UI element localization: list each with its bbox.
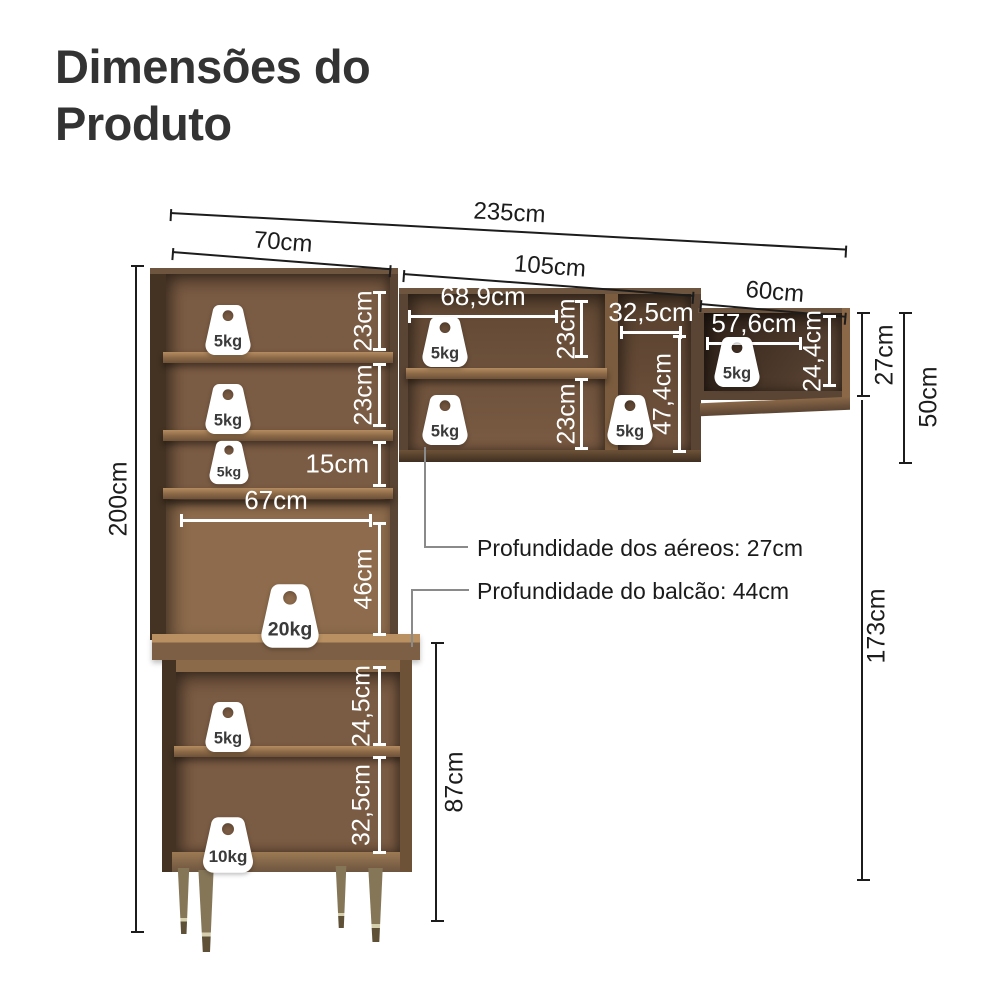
dim-mid-right-width: 32,5cm bbox=[620, 331, 682, 334]
weight-badge: 5kg bbox=[199, 701, 257, 753]
title-line-1: Dimensões do bbox=[55, 38, 370, 95]
leader-line-aereos bbox=[424, 447, 426, 548]
dim-hutch-shelf3: 15cm bbox=[378, 441, 381, 487]
weight-label: 5kg bbox=[214, 729, 242, 747]
leader-line-aereos bbox=[424, 546, 468, 548]
hutch-shelf bbox=[163, 430, 393, 441]
hutch-shelf bbox=[163, 352, 393, 363]
weight-badge: 5kg bbox=[416, 316, 474, 368]
dim-right-inner-width-label: 57,6cm bbox=[711, 308, 796, 339]
dim-mid-inner-width-label: 68,9cm bbox=[440, 281, 525, 312]
product-dimensions-diagram: Dimensões do Produto bbox=[0, 0, 1000, 1000]
page-title: Dimensões do Produto bbox=[55, 38, 370, 153]
weight-label: 5kg bbox=[214, 411, 242, 429]
dim-right-gap-label: 50cm bbox=[915, 366, 944, 427]
mid-bottom-edge bbox=[399, 450, 701, 462]
weight-label: 5kg bbox=[431, 344, 459, 362]
dim-base-shelf1: 24,5cm bbox=[378, 666, 381, 746]
dim-hutch-open-height: 46cm bbox=[378, 522, 381, 636]
dim-mid-shelf1-label: 23cm bbox=[553, 298, 582, 359]
dim-hutch-inner-width: 67cm bbox=[180, 519, 372, 522]
dim-hutch-shelf2: 23cm bbox=[378, 363, 381, 427]
dim-hutch-shelf3-label: 15cm bbox=[305, 449, 369, 480]
dim-total-height: 200cm bbox=[135, 266, 137, 932]
weight-label: 10kg bbox=[209, 847, 248, 866]
weight-badge: 5kg bbox=[708, 336, 766, 388]
dim-hutch-shelf1: 23cm bbox=[378, 291, 381, 351]
cabinet-leg bbox=[334, 866, 348, 928]
weight-label: 20kg bbox=[268, 619, 313, 641]
title-line-2: Produto bbox=[55, 95, 370, 152]
note-depth-aereos: Profundidade dos aéreos: 27cm bbox=[477, 535, 803, 562]
dim-mid-shelf2: 23cm bbox=[580, 378, 583, 450]
dim-right-cab-height: 27cm bbox=[861, 313, 863, 396]
dim-total-height-label: 200cm bbox=[105, 462, 134, 537]
dim-mid-shelf1: 23cm bbox=[580, 300, 583, 358]
cabinet-leg bbox=[366, 868, 385, 942]
dim-hutch-open-height-label: 46cm bbox=[350, 548, 379, 609]
base-left-side-panel bbox=[162, 660, 176, 872]
dim-right-inner-height: 24,4cm bbox=[828, 315, 831, 387]
base-right-edge bbox=[400, 660, 412, 872]
weight-label: 5kg bbox=[431, 422, 459, 440]
weight-label: 5kg bbox=[217, 465, 241, 481]
leader-line-balcao bbox=[411, 589, 469, 591]
dim-right-column-height-label: 173cm bbox=[863, 588, 892, 663]
weight-label: 5kg bbox=[723, 364, 751, 382]
dim-hutch-shelf2-label: 23cm bbox=[350, 364, 379, 425]
dim-base-height-label: 87cm bbox=[441, 751, 470, 812]
dim-hutch-shelf1-label: 23cm bbox=[350, 290, 379, 351]
note-depth-balcao: Profundidade do balcão: 44cm bbox=[477, 578, 789, 605]
dim-mid-right-width-label: 32,5cm bbox=[608, 297, 693, 328]
dim-left-width-label: 70cm bbox=[172, 220, 394, 265]
weight-badge: 5kg bbox=[601, 394, 659, 446]
dim-right-cab-height-label: 27cm bbox=[871, 324, 900, 385]
dim-mid-right-height: 47,4cm bbox=[678, 335, 681, 453]
weight-label: 5kg bbox=[616, 422, 644, 440]
dim-base-height: 87cm bbox=[435, 643, 437, 921]
cabinet-leg bbox=[176, 868, 191, 934]
dim-base-shelf2-label: 32,5cm bbox=[348, 764, 377, 846]
weight-label: 5kg bbox=[214, 332, 242, 350]
dim-right-width-label: 60cm bbox=[700, 272, 849, 313]
dim-base-shelf1-label: 24,5cm bbox=[348, 665, 377, 747]
dim-base-shelf2: 32,5cm bbox=[378, 756, 381, 854]
weight-badge: 20kg bbox=[253, 583, 327, 649]
dim-hutch-inner-width-label: 67cm bbox=[244, 485, 308, 516]
dim-mid-shelf2-label: 23cm bbox=[553, 383, 582, 444]
weight-badge: 10kg bbox=[196, 816, 260, 874]
weight-badge: 5kg bbox=[416, 394, 474, 446]
hutch-left-side-panel bbox=[150, 268, 166, 640]
leader-line-balcao bbox=[411, 589, 413, 647]
cabinet-leg bbox=[196, 870, 216, 952]
weight-badge: 5kg bbox=[199, 304, 257, 356]
dim-right-gap: 50cm bbox=[903, 313, 905, 463]
dim-right-inner-height-label: 24,4cm bbox=[799, 310, 828, 392]
weight-badge: 5kg bbox=[199, 383, 257, 435]
weight-badge: 5kg bbox=[204, 440, 254, 485]
dim-right-column-height: 173cm bbox=[861, 400, 863, 880]
